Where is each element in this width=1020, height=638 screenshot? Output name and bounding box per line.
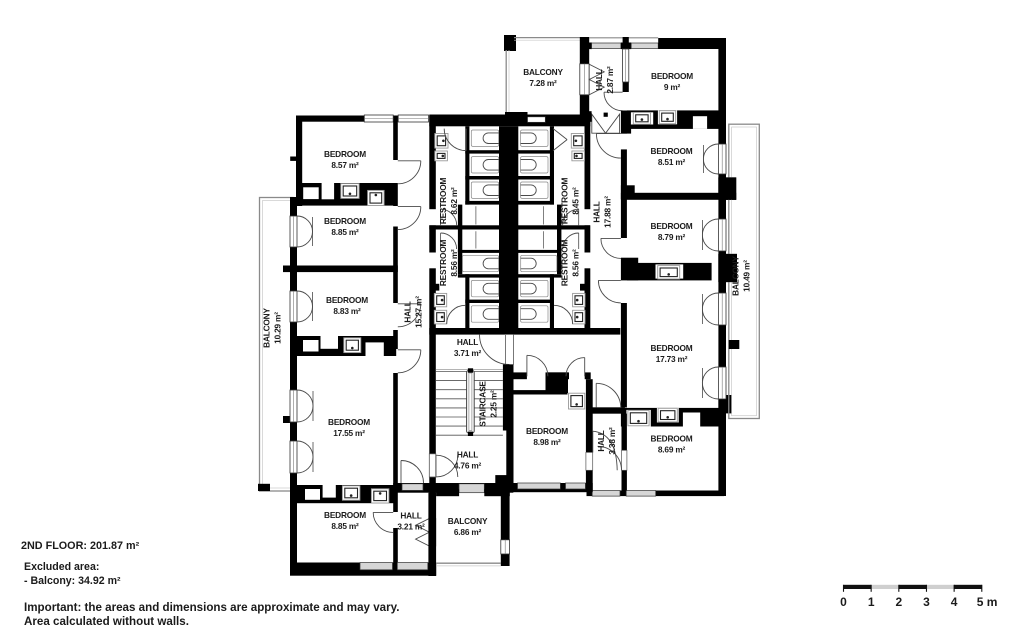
svg-text:4.76 m²: 4.76 m²	[454, 460, 482, 470]
svg-text:6.86 m²: 6.86 m²	[454, 527, 482, 537]
svg-text:8.79 m²: 8.79 m²	[658, 232, 686, 242]
svg-text:2.87 m²: 2.87 m²	[605, 66, 615, 94]
svg-text:17.73 m²: 17.73 m²	[656, 354, 688, 364]
svg-text:3.21 m²: 3.21 m²	[397, 521, 425, 531]
svg-text:BEDROOM: BEDROOM	[324, 149, 366, 159]
svg-text:8.83 m²: 8.83 m²	[333, 306, 361, 316]
svg-text:RESTROOM: RESTROOM	[438, 240, 448, 287]
svg-text:8.56 m²: 8.56 m²	[449, 249, 459, 277]
svg-text:8.57 m²: 8.57 m²	[331, 160, 359, 170]
svg-text:- Balcony: 34.92 m²: - Balcony: 34.92 m²	[24, 575, 121, 587]
svg-text:BEDROOM: BEDROOM	[328, 417, 370, 427]
svg-text:Excluded area:: Excluded area:	[24, 561, 99, 573]
svg-text:2ND FLOOR: 201.87 m²: 2ND FLOOR: 201.87 m²	[21, 540, 140, 552]
svg-text:8.85 m²: 8.85 m²	[331, 521, 359, 531]
svg-text:BEDROOM: BEDROOM	[651, 434, 693, 444]
svg-text:HALL: HALL	[596, 430, 606, 451]
svg-text:BEDROOM: BEDROOM	[324, 510, 366, 520]
svg-text:3.71 m²: 3.71 m²	[454, 348, 482, 358]
svg-text:BALCONY: BALCONY	[523, 67, 563, 77]
svg-text:7.28 m²: 7.28 m²	[529, 78, 557, 88]
svg-text:9 m²: 9 m²	[664, 82, 681, 92]
svg-text:BEDROOM: BEDROOM	[526, 426, 568, 436]
svg-text:0: 0	[840, 595, 847, 609]
svg-text:2: 2	[895, 595, 902, 609]
svg-text:8.85 m²: 8.85 m²	[331, 227, 359, 237]
svg-text:BEDROOM: BEDROOM	[651, 221, 693, 231]
svg-text:BEDROOM: BEDROOM	[326, 295, 368, 305]
svg-text:HALL: HALL	[403, 301, 413, 322]
svg-text:8.51 m²: 8.51 m²	[658, 157, 686, 167]
svg-text:BEDROOM: BEDROOM	[324, 216, 366, 226]
svg-text:BEDROOM: BEDROOM	[651, 71, 693, 81]
svg-text:10.29 m²: 10.29 m²	[272, 312, 282, 344]
svg-text:BEDROOM: BEDROOM	[651, 146, 693, 156]
svg-text:RESTROOM: RESTROOM	[560, 240, 570, 287]
svg-text:17.55 m²: 17.55 m²	[333, 428, 365, 438]
svg-text:HALL: HALL	[400, 511, 421, 521]
svg-text:HALL: HALL	[457, 337, 478, 347]
svg-text:HALL: HALL	[592, 201, 602, 222]
svg-text:8.69 m²: 8.69 m²	[658, 444, 686, 454]
svg-text:Area calculated without walls.: Area calculated without walls.	[24, 615, 189, 628]
svg-text:15.27 m²: 15.27 m²	[413, 296, 423, 328]
svg-text:BALCONY: BALCONY	[448, 516, 488, 526]
svg-text:RESTROOM: RESTROOM	[560, 178, 570, 225]
svg-text:Important: the areas and dimen: Important: the areas and dimensions are …	[24, 601, 399, 614]
svg-text:HALL: HALL	[594, 69, 604, 90]
svg-text:3.38 m²: 3.38 m²	[607, 427, 617, 455]
svg-text:3: 3	[923, 595, 930, 609]
svg-text:2.25 m²: 2.25 m²	[488, 390, 498, 418]
svg-text:8.45 m²: 8.45 m²	[570, 187, 580, 215]
svg-text:8.56 m²: 8.56 m²	[570, 249, 580, 277]
svg-text:STAIRCASE: STAIRCASE	[478, 381, 488, 427]
svg-text:1: 1	[868, 595, 875, 609]
svg-text:BEDROOM: BEDROOM	[651, 343, 693, 353]
svg-text:5 m: 5 m	[977, 595, 998, 609]
svg-text:HALL: HALL	[457, 450, 478, 460]
svg-text:4: 4	[951, 595, 958, 609]
svg-text:RESTROOM: RESTROOM	[438, 178, 448, 225]
svg-text:10.49 m²: 10.49 m²	[741, 260, 751, 292]
svg-text:8.98 m²: 8.98 m²	[533, 437, 561, 447]
svg-text:17.88 m²: 17.88 m²	[602, 196, 612, 228]
svg-text:BALCONY: BALCONY	[731, 256, 741, 296]
svg-text:BALCONY: BALCONY	[262, 308, 272, 348]
svg-text:8.62 m²: 8.62 m²	[449, 187, 459, 215]
